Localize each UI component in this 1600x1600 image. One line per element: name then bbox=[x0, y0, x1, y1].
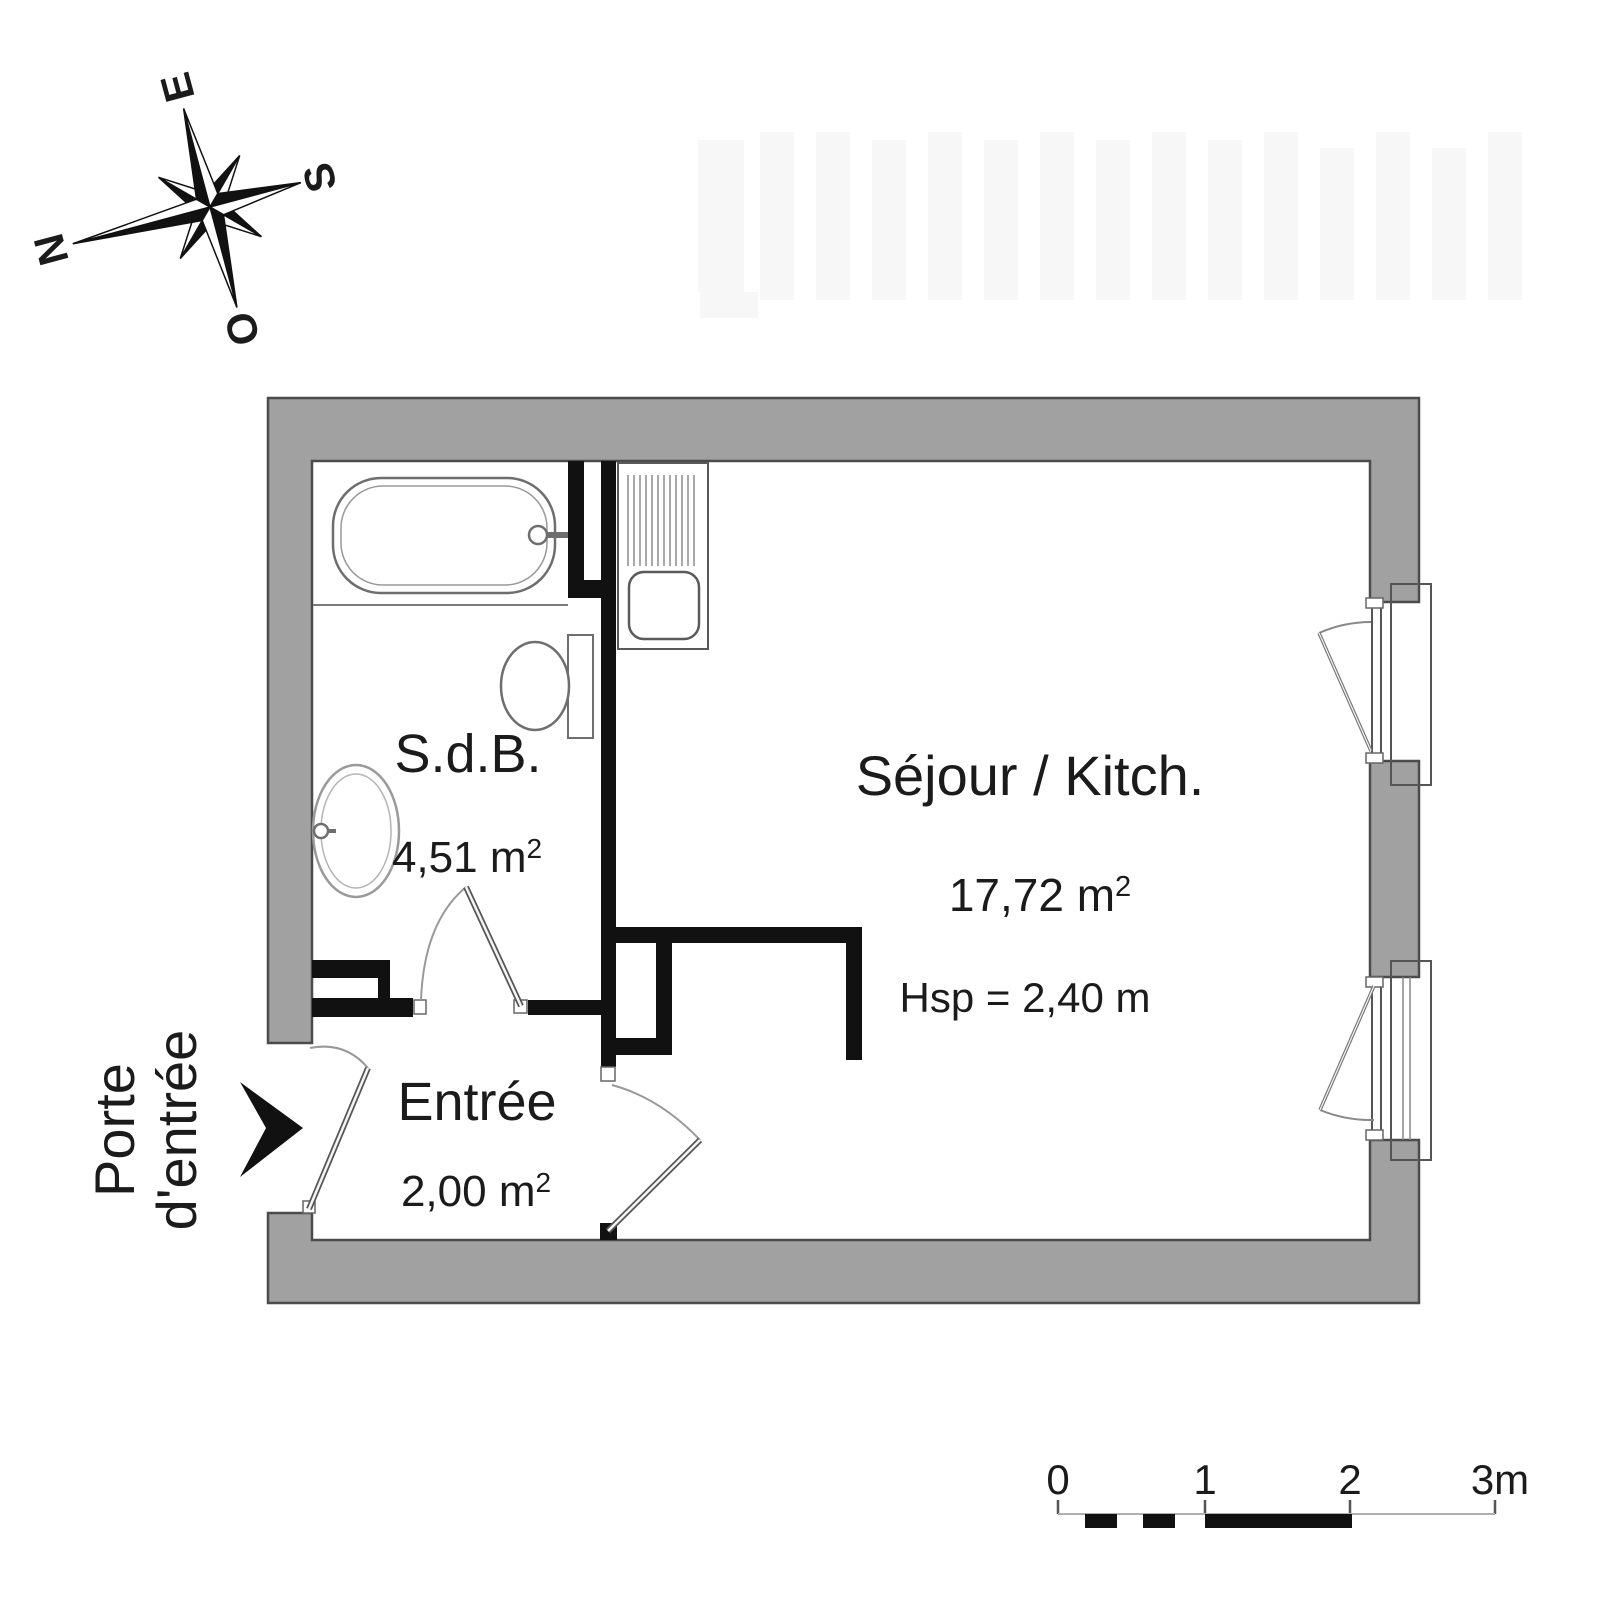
window-upper bbox=[1319, 584, 1431, 785]
washbasin-faucet-icon bbox=[314, 824, 328, 838]
compass-label-west: O bbox=[215, 307, 269, 351]
entry-area: 2,00 m2 bbox=[401, 1167, 551, 1216]
floor-plan-canvas: N E S O bbox=[0, 0, 1600, 1600]
bathtub-faucet-icon bbox=[529, 526, 547, 544]
scale-tick-0: 0 bbox=[1046, 1456, 1069, 1503]
compass-label-east: E bbox=[151, 68, 204, 107]
entry-label: Entrée bbox=[397, 1072, 556, 1132]
wall-right-mid-pier bbox=[1370, 761, 1419, 977]
scale-bar: 0 1 2 3m bbox=[1046, 1456, 1529, 1528]
compass-rose: N E S O bbox=[0, 38, 379, 393]
wall-bottom bbox=[268, 1140, 1419, 1303]
sink-basin bbox=[629, 572, 699, 639]
front-door-note-line2: d'entrée bbox=[145, 1030, 208, 1231]
living-room-ceiling-height: Hsp = 2,40 m bbox=[900, 974, 1151, 1021]
bathtub bbox=[313, 478, 568, 605]
scale-tick-1: 1 bbox=[1193, 1456, 1216, 1503]
compass-label-north: N bbox=[24, 229, 77, 270]
living-room-door bbox=[608, 1085, 700, 1231]
kitchen-sink-unit bbox=[618, 463, 708, 649]
entry-door bbox=[309, 1047, 368, 1209]
compass-star bbox=[46, 84, 327, 344]
scale-tick-2: 2 bbox=[1338, 1456, 1361, 1503]
watermark-ghost bbox=[698, 132, 1522, 318]
window-lower bbox=[1320, 961, 1431, 1160]
compass-label-south: S bbox=[293, 158, 346, 197]
washbasin bbox=[313, 765, 399, 897]
floorplan-page: N E S O bbox=[0, 0, 1600, 1600]
bathroom-label: S.d.B. bbox=[394, 724, 541, 784]
living-room-area: 17,72 m2 bbox=[949, 869, 1131, 921]
bathroom-area: 4,51 m2 bbox=[392, 833, 542, 882]
living-room-label: Séjour / Kitch. bbox=[856, 744, 1205, 807]
toilet bbox=[501, 635, 593, 738]
bathroom-door bbox=[421, 887, 521, 1006]
scale-tick-3m: 3m bbox=[1471, 1456, 1529, 1503]
entry-arrow-icon bbox=[240, 1082, 303, 1177]
front-door-note-line1: Porte bbox=[83, 1063, 146, 1197]
